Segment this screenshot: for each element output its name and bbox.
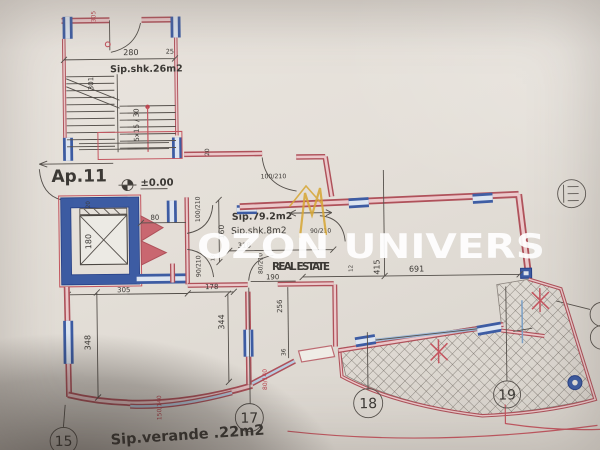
grid-marker-19-label: 19: [498, 387, 516, 403]
veranda-area-label: Sip.verande .22m2: [110, 423, 265, 449]
window: [68, 319, 249, 408]
stair-flight: [66, 73, 182, 159]
dim-180: 180: [84, 234, 93, 249]
floor-plan-drawing: 305 280 25 Sip.shk.26m2 301 5x15 / 30 Ap…: [0, 0, 600, 450]
dim-305-top: 305: [90, 11, 97, 23]
bottom-rooms: 348 344 150/140 80/140: [67, 284, 270, 421]
dim-20-shaft: 20: [86, 201, 92, 209]
stair-wedge: [141, 241, 166, 265]
dim-178: 178: [205, 283, 218, 291]
entry-hall: Ap.11 ±0.00: [39, 160, 174, 201]
grid-marker-15-label: 15: [55, 434, 73, 450]
dim-80: 80: [150, 214, 159, 222]
door-100-210-top: 100/210: [261, 173, 287, 180]
dim-190: 190: [266, 273, 279, 281]
grid-marker-18-label: 18: [359, 396, 377, 412]
dim-348: 348: [83, 335, 92, 350]
stair-note: 5x15 / 30: [133, 108, 141, 141]
watermark-tagline: REAL ESTATE: [272, 261, 330, 273]
apartment-label: Ap.11: [51, 166, 107, 187]
dim-36: 36: [281, 348, 288, 356]
dim-305-hall: 305: [117, 286, 130, 294]
terrace-hatch: [339, 278, 595, 416]
grid-marker-partial: [590, 325, 600, 349]
dim-301: 301: [87, 77, 95, 90]
dim-344: 344: [217, 314, 226, 329]
window-150-140: 150/140: [156, 395, 163, 420]
dim-280: 280: [123, 48, 138, 57]
grid-marker-partial: [590, 302, 600, 326]
window-sill: [298, 346, 334, 362]
dim-20-wall: 20: [204, 148, 211, 156]
panel-symbol-icon: [557, 180, 585, 208]
dim-256: 256: [276, 299, 284, 313]
terrace: 36 12: [250, 262, 600, 440]
watermark-brand: OZON UNIVERS: [197, 226, 545, 266]
window-80-140: 80/140: [262, 369, 269, 390]
level-mark-label: ±0.00: [140, 178, 173, 189]
stairwell-room: 305 280 25 Sip.shk.26m2 301 5x15 / 30: [60, 10, 183, 161]
stairwell-area-label: Sip.shk.26m2: [110, 63, 183, 75]
floor-plan-photo: 305 280 25 Sip.shk.26m2 301 5x15 / 30 Ap…: [0, 0, 600, 450]
level-mark-icon: [118, 179, 136, 190]
dim-25: 25: [166, 48, 174, 56]
door-100-210-v: 100/210: [195, 196, 202, 222]
